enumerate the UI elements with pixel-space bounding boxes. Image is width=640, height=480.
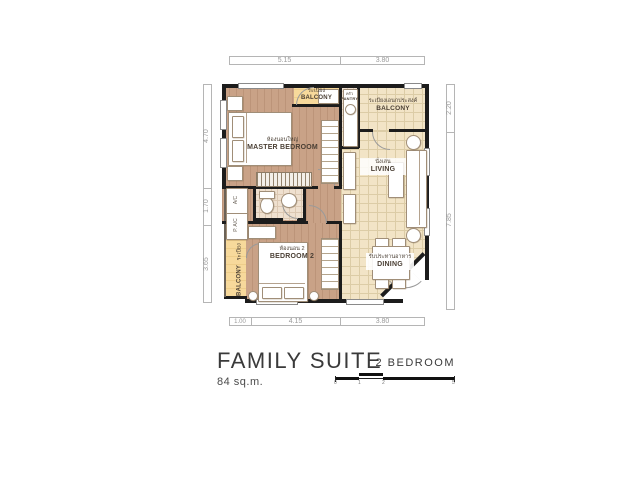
dining-label-thai: รับประทานอาหาร bbox=[366, 254, 414, 261]
scale-tick-label: 0 bbox=[334, 381, 337, 386]
scale-tick-label: 2 bbox=[382, 381, 385, 386]
balcony-top-label-thai: ระเบียง bbox=[294, 88, 339, 95]
balcony-left-label-thai: ระเบียง bbox=[236, 243, 242, 260]
nightstand bbox=[227, 166, 243, 181]
scale-tick-label: 5 bbox=[452, 381, 455, 386]
balcony-left-label: BALCONY ระเบียง bbox=[226, 240, 245, 300]
wall bbox=[357, 129, 373, 132]
dining-label-en: DINING bbox=[366, 261, 414, 269]
dining-label: รับประทานอาหาร DINING bbox=[366, 253, 414, 270]
window bbox=[220, 138, 227, 168]
sofa-back-line bbox=[419, 151, 420, 225]
tv-console bbox=[343, 152, 356, 190]
window bbox=[346, 299, 384, 305]
dimension-value: 3.65 bbox=[203, 249, 211, 279]
living-label-thai: นั่งเล่น bbox=[360, 159, 406, 166]
pillow bbox=[284, 287, 304, 299]
wall bbox=[303, 188, 306, 221]
console bbox=[343, 194, 356, 224]
balcony-top-label-en: BALCONY bbox=[294, 95, 339, 102]
dimension-divider bbox=[446, 132, 455, 133]
wall bbox=[389, 129, 429, 132]
sink bbox=[281, 193, 297, 208]
dimension-value: 2.20 bbox=[446, 93, 454, 123]
pantry-sink bbox=[345, 104, 356, 115]
pantry-label: ครัว PANTRY bbox=[341, 92, 358, 102]
pantry-label-en: PANTRY bbox=[341, 97, 358, 102]
toilet bbox=[260, 197, 274, 214]
cabinet bbox=[248, 226, 276, 239]
nightstand bbox=[227, 96, 243, 111]
bedroom2-bed-line bbox=[259, 283, 305, 284]
scale-bar-segment bbox=[359, 373, 383, 376]
dimension-value: 3.80 bbox=[340, 318, 425, 326]
bedroom2-label-thai: ห้องนอน 2 bbox=[252, 246, 332, 253]
pillow bbox=[232, 116, 244, 138]
side-table bbox=[406, 228, 421, 243]
dimension-value: 1.00 bbox=[229, 318, 251, 326]
bedroom2-label: ห้องนอน 2 BEDROOM 2 bbox=[252, 246, 332, 261]
wardrobe bbox=[256, 172, 312, 187]
scale-bar-segment bbox=[335, 377, 359, 380]
master-bedroom-label: ห้องนอนใหญ่ MASTER BEDROOM bbox=[240, 137, 325, 152]
balcony-right-label-en: BALCONY bbox=[360, 105, 426, 113]
closet bbox=[321, 120, 339, 184]
side-table bbox=[406, 135, 421, 150]
dimension-divider bbox=[203, 188, 212, 189]
window bbox=[220, 100, 227, 130]
sofa bbox=[406, 150, 427, 228]
dimension-divider bbox=[203, 225, 212, 226]
balcony-top-label: ระเบียง BALCONY bbox=[294, 88, 339, 102]
dimension-value: 4.70 bbox=[203, 121, 211, 151]
pillow bbox=[262, 287, 282, 299]
bedroom2-label-en: BEDROOM 2 bbox=[252, 253, 332, 261]
unit-type: 2 BEDROOM bbox=[335, 357, 455, 369]
floor-plan-page: ห้องนอนใหญ่ MASTER BEDROOM ระเบียง BALCO… bbox=[0, 0, 640, 480]
balcony-right-label: ระเบียงเอนกประสงค์ BALCONY bbox=[360, 98, 426, 112]
dimension-value: 1.70 bbox=[203, 191, 211, 221]
p-ac-label: P. A/C bbox=[233, 211, 239, 239]
wall bbox=[339, 221, 342, 303]
scale-bar-segment bbox=[383, 377, 455, 380]
stool bbox=[309, 291, 319, 301]
master-bedroom-label-en: MASTER BEDROOM bbox=[240, 144, 325, 152]
stool bbox=[248, 291, 258, 301]
dimension-value: 4.15 bbox=[251, 318, 340, 326]
wall bbox=[334, 186, 342, 189]
scale-tick-label: 1 bbox=[358, 381, 361, 386]
master-bedroom-label-thai: ห้องนอนใหญ่ bbox=[240, 137, 325, 144]
wall bbox=[253, 188, 256, 221]
dimension-value: 5.15 bbox=[229, 57, 340, 65]
living-label-en: LIVING bbox=[360, 166, 406, 174]
dimension-value: 3.80 bbox=[340, 57, 425, 65]
balcony-left-label-en: BALCONY bbox=[236, 265, 242, 296]
window bbox=[238, 83, 284, 89]
scale-bar: 0 1 2 5 bbox=[335, 372, 455, 384]
toilet-tank bbox=[259, 191, 275, 199]
window bbox=[404, 83, 422, 89]
balcony-right-label-thai: ระเบียงเอนกประสงค์ bbox=[360, 98, 426, 105]
dimension-value: 7.85 bbox=[446, 205, 454, 235]
ac-label: A/C bbox=[233, 186, 239, 214]
living-label: นั่งเล่น LIVING bbox=[360, 158, 406, 175]
plan-area: 84 sq.m. bbox=[217, 376, 263, 388]
